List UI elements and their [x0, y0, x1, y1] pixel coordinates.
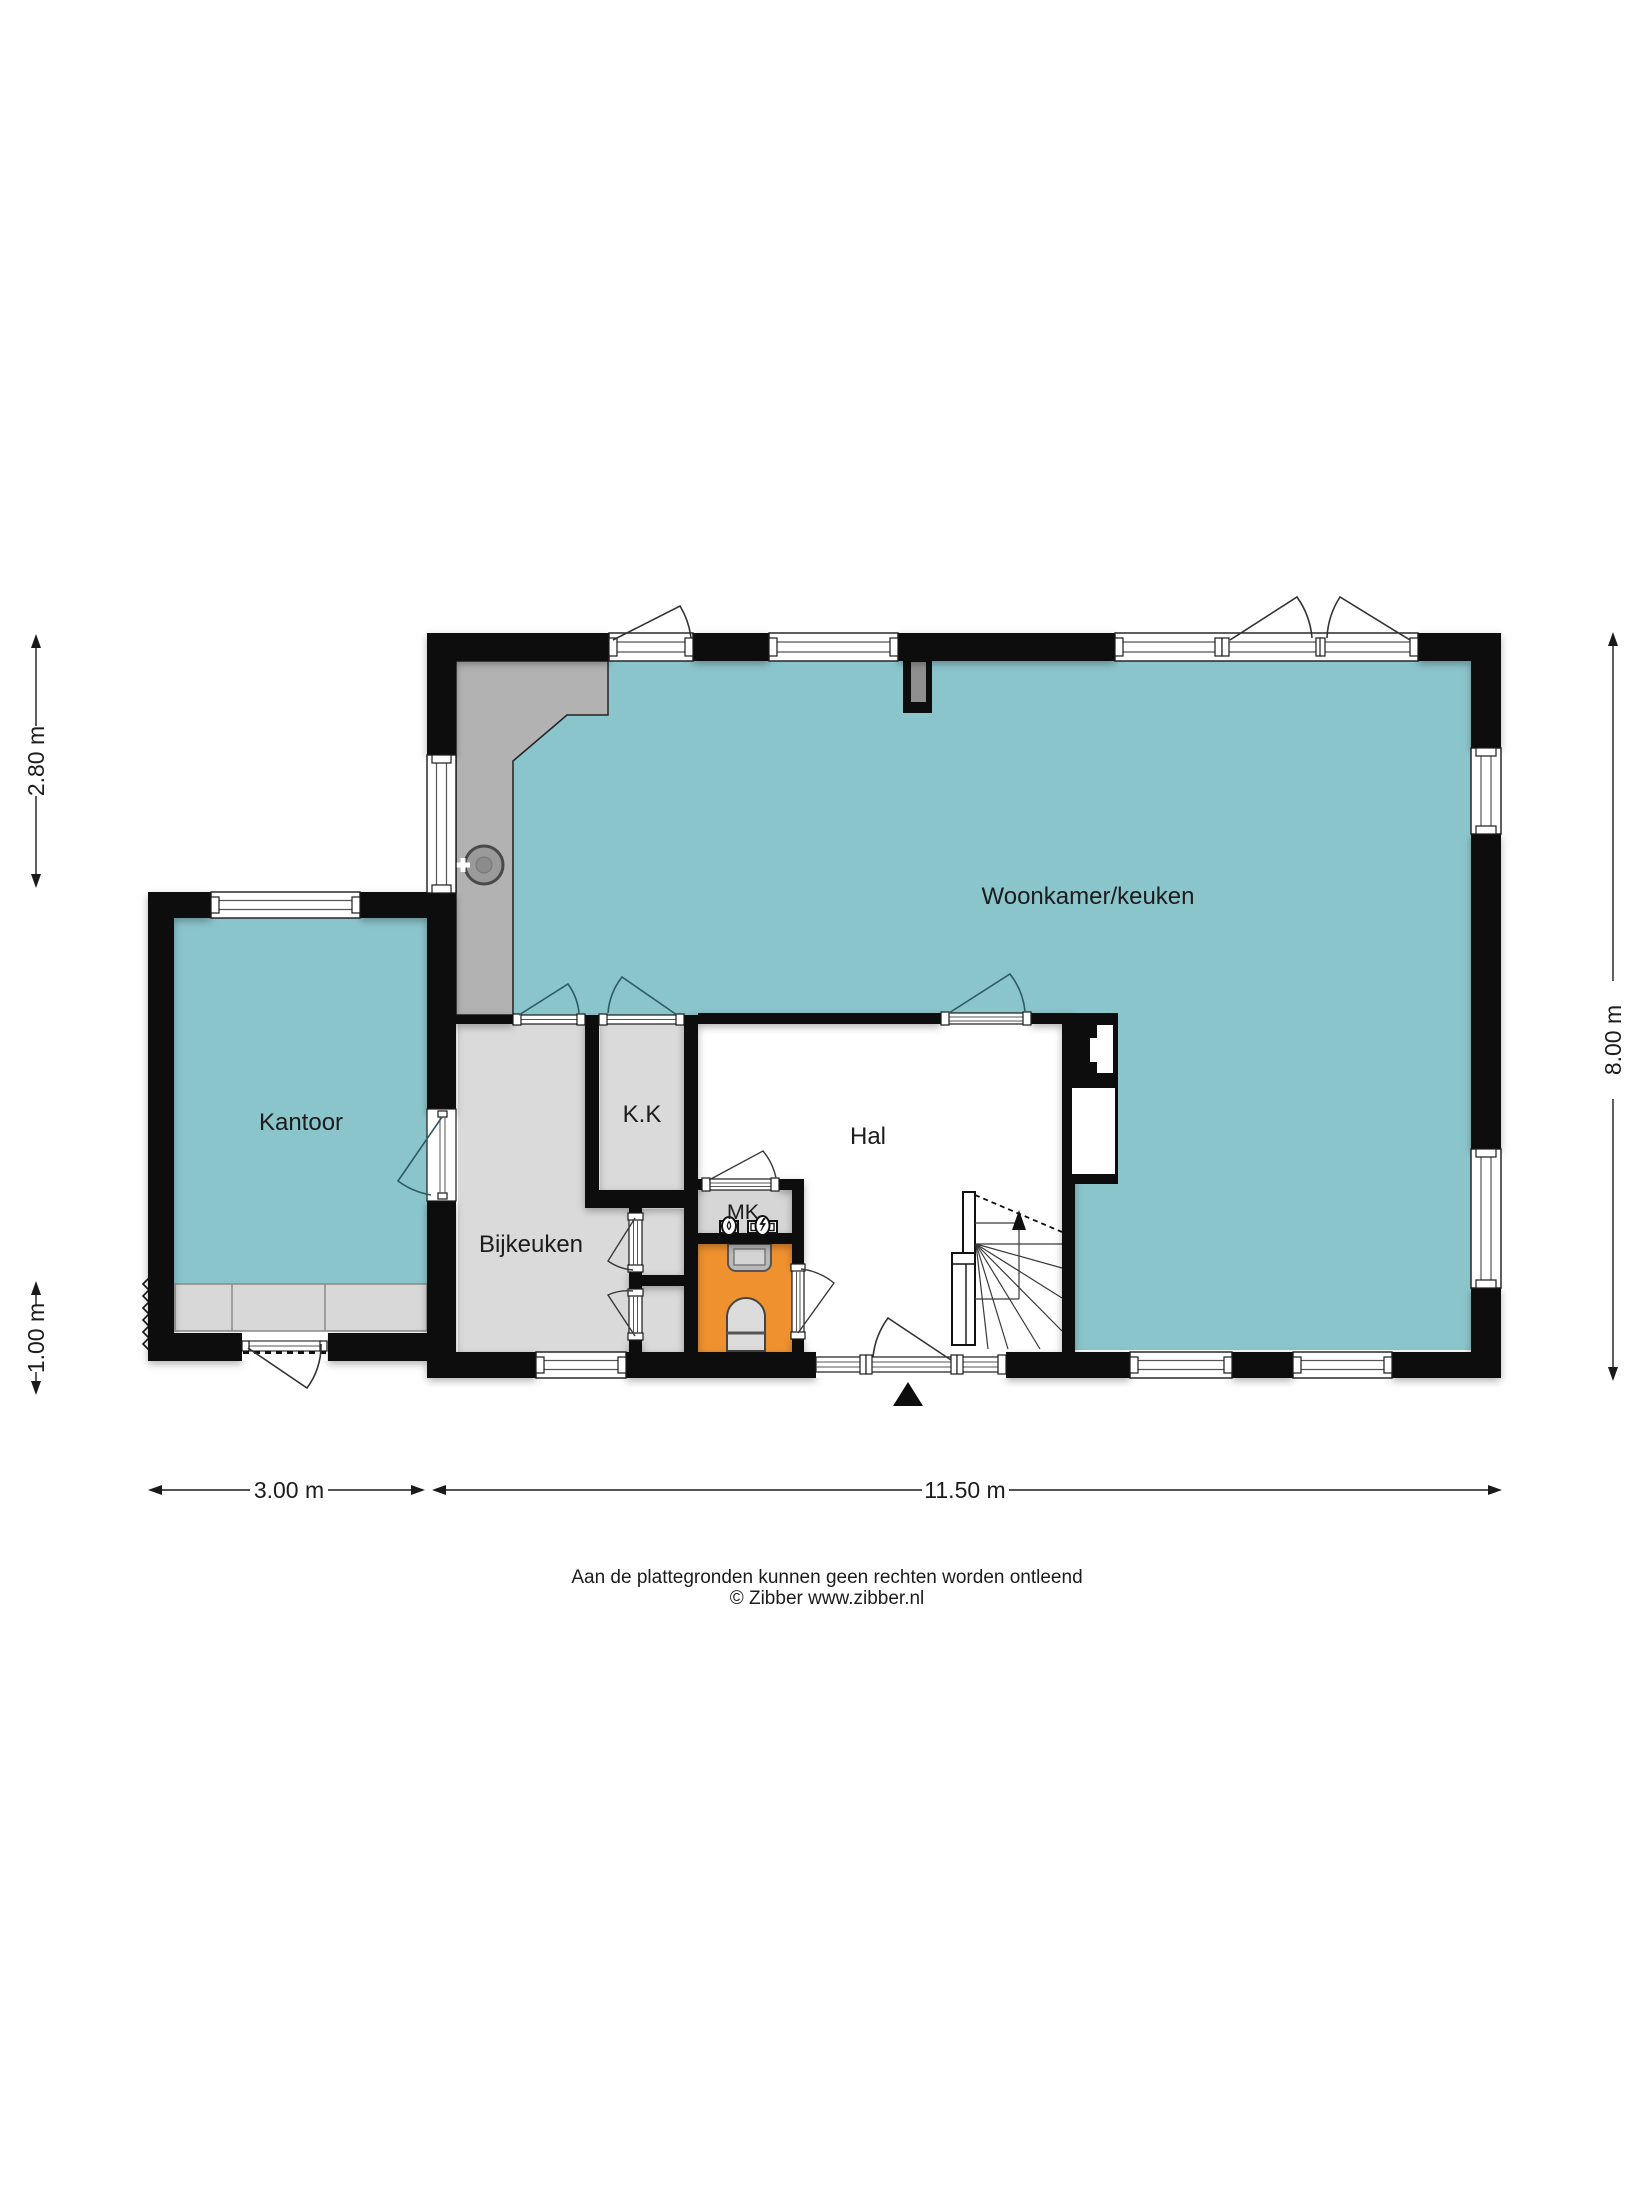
- svg-text:Hal: Hal: [850, 1123, 886, 1150]
- svg-text:11.50 m: 11.50 m: [924, 1477, 1005, 1503]
- svg-text:K.K: K.K: [623, 1101, 662, 1128]
- svg-text:© Zibber www.zibber.nl: © Zibber www.zibber.nl: [730, 1588, 925, 1609]
- svg-text:Woonkamer/keuken: Woonkamer/keuken: [982, 883, 1195, 910]
- svg-text:8.00 m: 8.00 m: [1600, 1005, 1626, 1075]
- svg-text:Aan de plattegronden kunnen ge: Aan de plattegronden kunnen geen rechten…: [571, 1567, 1082, 1588]
- svg-text:3.00 m: 3.00 m: [254, 1477, 324, 1503]
- svg-text:1.00 m: 1.00 m: [23, 1303, 49, 1373]
- svg-text:2.80 m: 2.80 m: [23, 726, 49, 796]
- svg-text:MK: MK: [727, 1200, 760, 1224]
- svg-text:Kantoor: Kantoor: [259, 1109, 343, 1136]
- svg-text:Bijkeuken: Bijkeuken: [479, 1231, 583, 1258]
